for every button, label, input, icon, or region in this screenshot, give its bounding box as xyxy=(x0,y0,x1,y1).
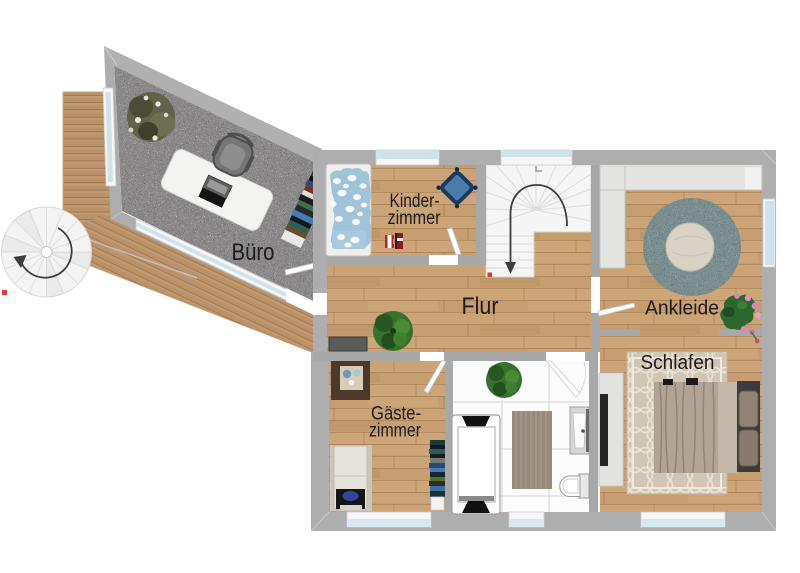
svg-text:zimmer: zimmer xyxy=(369,421,422,442)
svg-text:Büro: Büro xyxy=(232,239,275,266)
svg-text:Schlafen: Schlafen xyxy=(641,352,715,374)
svg-text:zimmer: zimmer xyxy=(388,207,441,229)
svg-text:Flur: Flur xyxy=(462,293,499,320)
svg-text:Ankleide: Ankleide xyxy=(645,297,719,320)
